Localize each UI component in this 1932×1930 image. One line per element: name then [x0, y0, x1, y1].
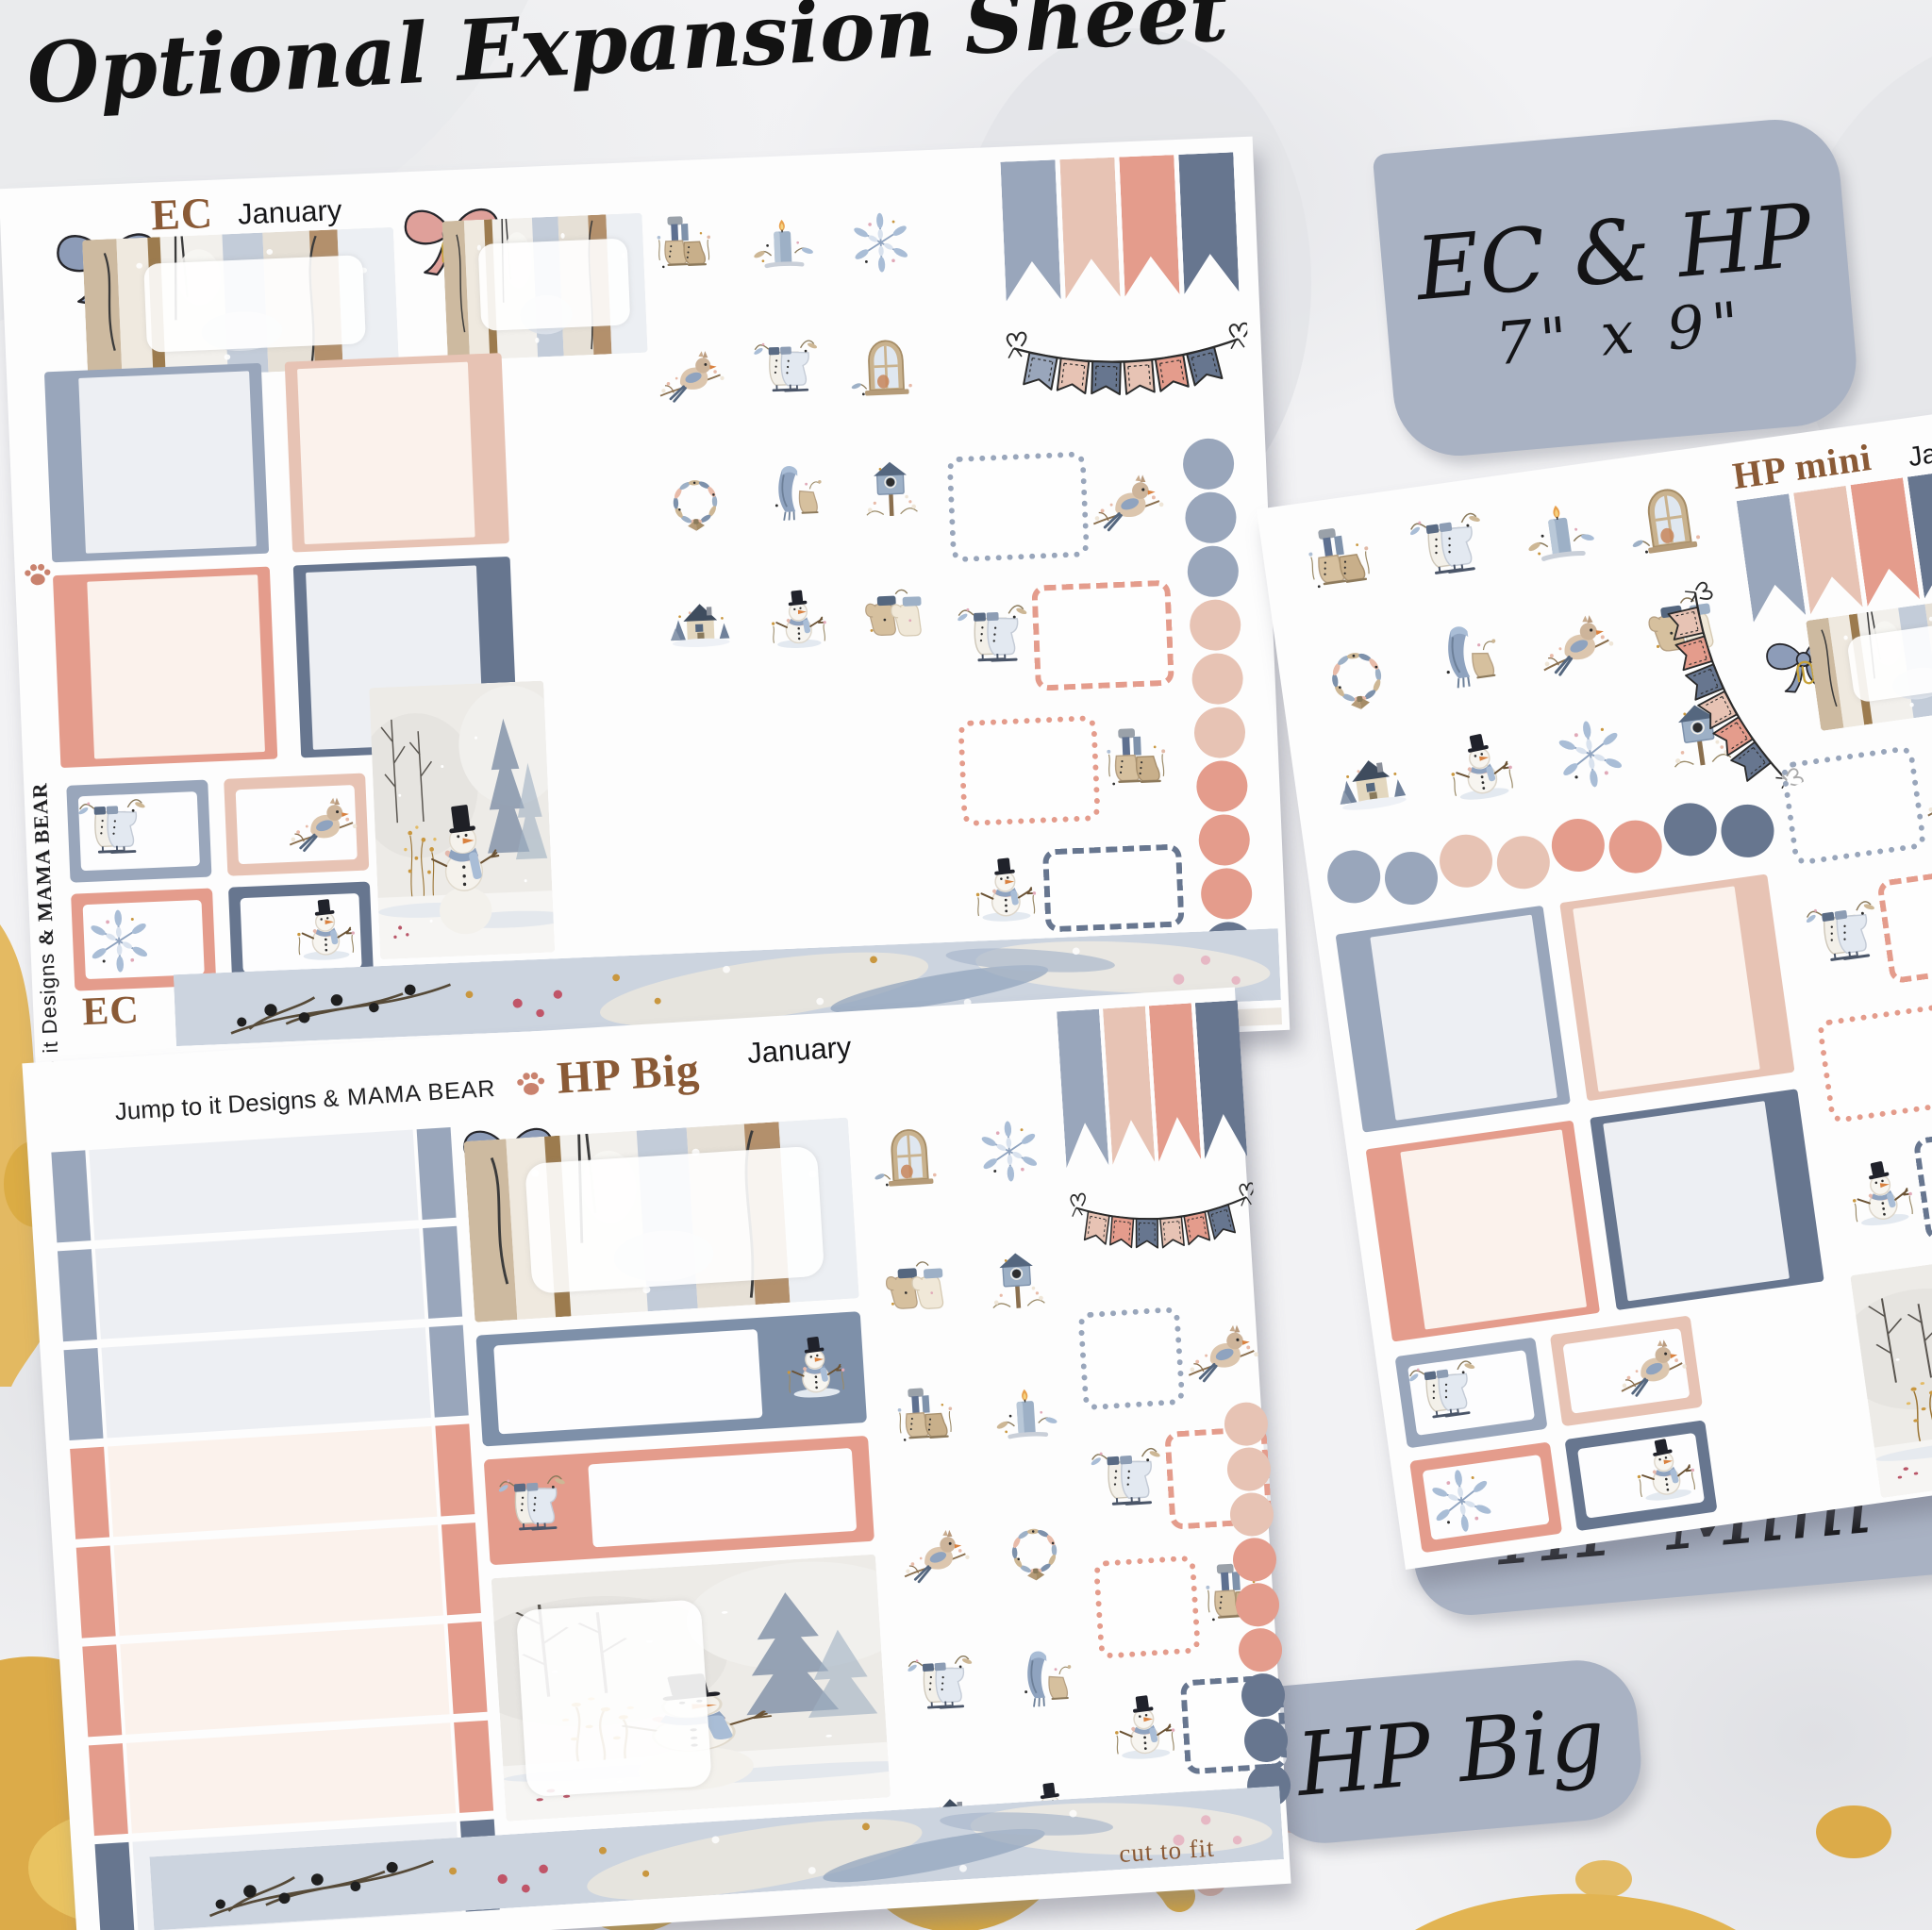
half-box-sticker [1409, 1441, 1562, 1553]
strip-sticker [82, 1622, 487, 1737]
snowflake-icon [73, 894, 165, 987]
window-icon [856, 1088, 964, 1226]
house-icon [649, 561, 752, 690]
bunting-banner-sticker [1004, 312, 1251, 428]
hp-big-month-label: January [746, 1030, 852, 1071]
dotted-box-sticker [1796, 858, 1932, 999]
hp-big-tab-label: HP Big [1292, 1688, 1608, 1815]
pennant-flag [1059, 158, 1120, 299]
strip-sticker [70, 1423, 475, 1539]
pennant-flag-stickers [1057, 1000, 1247, 1168]
half-box-sticker [1564, 1420, 1717, 1531]
full-box-sticker [285, 353, 509, 552]
strip-sticker [89, 1721, 493, 1836]
scarf-icon [989, 1613, 1097, 1752]
half-box-sticker [66, 780, 211, 883]
ec-footer-label: EC [81, 988, 140, 1035]
scene-label-box [516, 1599, 712, 1797]
snowflake-icon [956, 1082, 1064, 1221]
pennant-flag [1737, 493, 1807, 623]
dot-sticker [1606, 817, 1665, 876]
strip-sticker [64, 1325, 469, 1440]
cardinal-icon [1513, 582, 1638, 707]
strip-sticker [51, 1127, 456, 1242]
cardinal-icon [1078, 455, 1174, 551]
full-box-sticker [1590, 1089, 1824, 1310]
snowman-icon [1419, 707, 1543, 831]
cardinal-icon [1601, 1318, 1701, 1418]
winter-scene-sticker [369, 681, 555, 959]
dot-sticker [1224, 1401, 1270, 1447]
pennant-flag [1119, 155, 1179, 296]
full-box-sticker [53, 567, 277, 768]
dotted-box-sticker [1832, 1117, 1932, 1257]
pennant-flag [1057, 1009, 1108, 1168]
skates-icon [947, 591, 1043, 688]
snowman-icon [958, 844, 1054, 940]
skates-icon [1080, 1435, 1178, 1533]
dot-sticker [1193, 706, 1246, 758]
dot-sticker [1660, 800, 1720, 859]
size-label: EC & HP 7" x 9" [1373, 114, 1862, 461]
strip-sticker [58, 1226, 462, 1341]
snowman-icon [279, 886, 372, 978]
house-icon [1309, 723, 1434, 847]
snowman-icon [1829, 1144, 1932, 1249]
header-label-box [143, 255, 366, 353]
dot-sticker [1191, 653, 1244, 706]
pennant-flag [1793, 486, 1863, 615]
header-label-box [525, 1146, 824, 1294]
skates-icon [1793, 886, 1898, 990]
wreath-icon [1294, 613, 1419, 738]
cardinal-icon [1172, 1304, 1270, 1402]
dot-sticker [1718, 801, 1777, 860]
snowman-icon [1615, 1423, 1715, 1522]
dotted-box-sticker [944, 444, 1171, 567]
product-image: EC & HP 7" x 9" HP Mini HP Big Jump to i… [0, 0, 1932, 1930]
scarf-icon [1404, 598, 1528, 723]
hp-big-tab: HP Big [1256, 1655, 1645, 1848]
mittens-icon [864, 1221, 973, 1359]
cut-to-fit-note: cut to fit [1118, 1834, 1215, 1869]
hp-mini-month-label: Jan [1907, 437, 1932, 474]
dot-sticker [1436, 831, 1495, 890]
size-label-line1: EC & HP [1412, 191, 1815, 316]
dotted-box-sticker [950, 576, 1176, 699]
dot-sticker [1182, 438, 1235, 491]
dot-sticker [1200, 867, 1253, 920]
dot-sticker [1324, 847, 1384, 907]
pennant-flag [1851, 477, 1921, 607]
boots-icon [873, 1354, 981, 1492]
full-box-sticker [1559, 873, 1794, 1101]
full-box-sticker [1366, 1121, 1601, 1342]
dot-sticker [1229, 1491, 1275, 1538]
dot-sticker [1198, 813, 1251, 866]
deco-icon-grid [633, 178, 948, 690]
dot-sticker [1187, 545, 1240, 598]
header-label-box [478, 238, 631, 331]
pennant-flag [1103, 1007, 1155, 1165]
window-icon [1607, 458, 1731, 583]
dotted-box-sticker [956, 707, 1182, 830]
paw-icon [22, 560, 53, 586]
candle-icon [973, 1347, 1081, 1486]
snowman-icon [1095, 1681, 1193, 1779]
candle-icon [731, 182, 834, 311]
skates-icon [68, 786, 160, 878]
dot-sticker [1493, 833, 1553, 892]
skates-icon [1397, 1346, 1497, 1446]
dotted-box-sticker [961, 840, 1187, 940]
dot-sticker [1238, 1627, 1284, 1673]
pennant-flag-stickers [1000, 152, 1239, 301]
half-box-sticker [484, 1436, 874, 1565]
winter-scene-sticker [1850, 1243, 1932, 1498]
dot-sticker [1548, 815, 1607, 874]
wreath-icon [643, 437, 746, 566]
snowman-icon [747, 557, 850, 687]
dot-sticker [1235, 1582, 1281, 1628]
hp-big-brand-text: Jump to it Designs & MAMA BEAR [114, 1073, 497, 1126]
full-box-sticker [44, 363, 269, 562]
dot-sticker [1241, 1672, 1287, 1719]
dotted-box-sticker [1814, 988, 1932, 1128]
dot-sticker [1381, 848, 1441, 907]
dot-sticker [1232, 1537, 1278, 1583]
paw-icon [514, 1069, 548, 1097]
bunting-banner-sticker [1068, 1173, 1258, 1279]
dotted-box-sticker [1777, 730, 1932, 871]
snowflake-icon [1411, 1451, 1511, 1551]
scarf-icon [741, 432, 844, 561]
window-icon [835, 303, 938, 432]
skates-icon [737, 308, 840, 437]
strips-column [51, 1127, 499, 1930]
dotted-box-sticker [1075, 1297, 1267, 1414]
ec-sheet: Jump to it Designs & MAMA BEAR EC Januar… [0, 137, 1290, 1083]
ec-month-label: January [237, 193, 342, 232]
hp-big-code-label: HP Big [556, 1043, 702, 1104]
half-box-sticker [475, 1311, 867, 1446]
cardinal-icon [881, 1486, 990, 1624]
strip-sticker [76, 1522, 481, 1638]
snowflake-icon [829, 178, 932, 308]
boots-icon [1279, 505, 1404, 629]
wreath-icon [981, 1480, 1090, 1619]
candle-icon [1497, 474, 1622, 598]
birdhouse-icon [964, 1214, 1073, 1353]
pennant-flag [1178, 152, 1239, 293]
full-box-sticker [1336, 906, 1571, 1133]
hp-big-sheet: Jump to it Designs & MAMA BEAR HP Big Ja… [22, 988, 1291, 1930]
snowflake-icon [1528, 691, 1653, 816]
dot-sticker [1184, 491, 1237, 544]
skates-icon [1389, 489, 1513, 613]
half-box-sticker [1550, 1315, 1703, 1426]
pennant-flag [1000, 159, 1060, 301]
dot-sticker [1226, 1446, 1273, 1492]
dot-stickers-column [1182, 438, 1256, 974]
cardinal-icon [275, 777, 367, 870]
skates-icon [890, 1619, 998, 1757]
dot-sticker [1189, 599, 1241, 652]
cardinal-icon [639, 311, 741, 441]
birdhouse-icon [840, 428, 942, 557]
dot-sticker [1195, 759, 1248, 812]
pennant-flag [1149, 1003, 1201, 1161]
half-box-sticker [1394, 1337, 1547, 1448]
dot-sticker [1243, 1718, 1290, 1764]
mittens-icon [845, 553, 948, 682]
boots-icon [1089, 718, 1185, 814]
half-box-sticker [224, 774, 369, 876]
boots-icon [633, 187, 736, 316]
